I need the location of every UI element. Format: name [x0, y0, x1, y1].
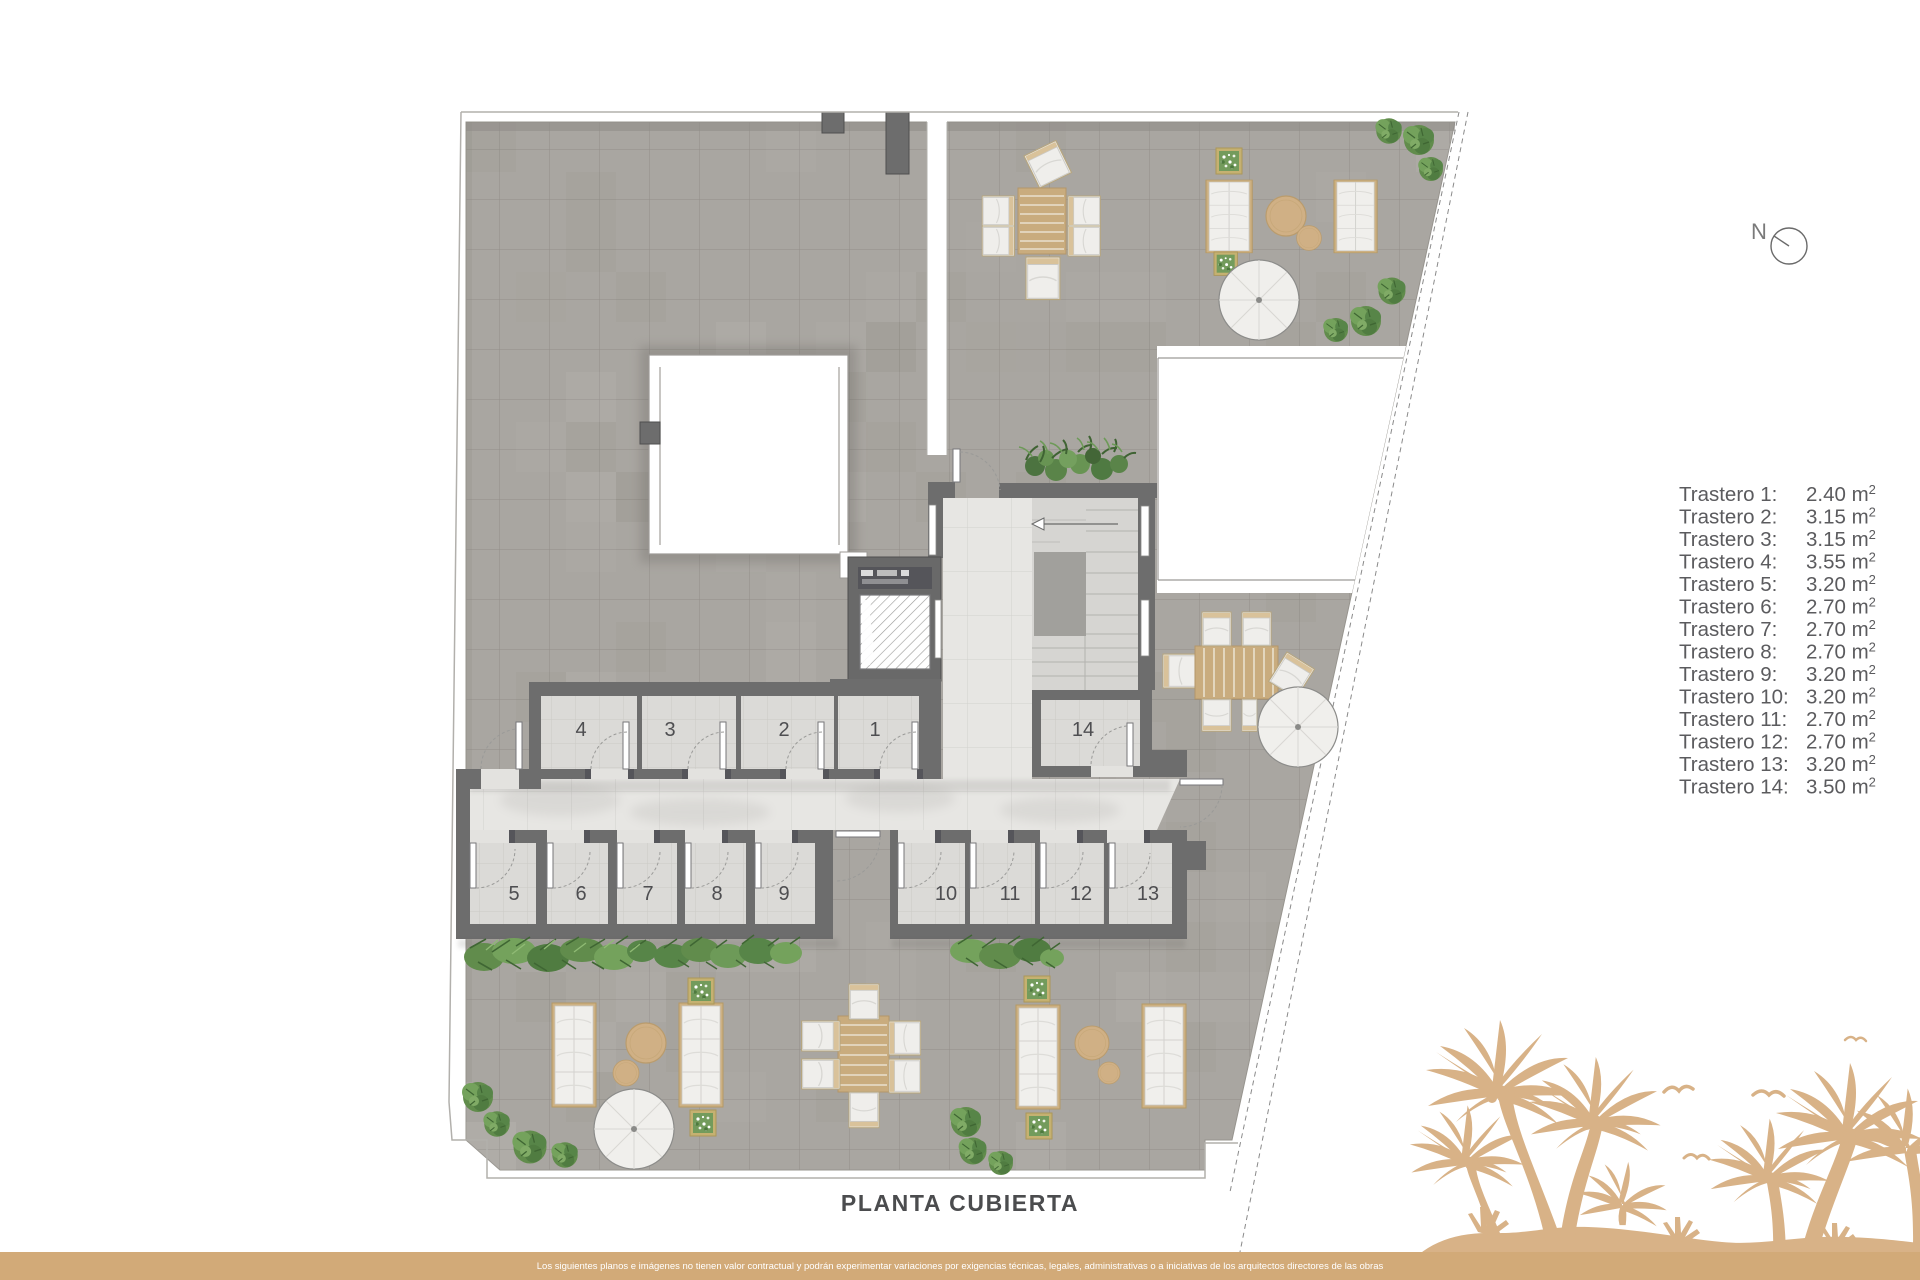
svg-text:Trastero 8:: Trastero 8: [1679, 641, 1777, 664]
svg-text:12: 12 [1070, 883, 1092, 905]
svg-text:Trastero 13:: Trastero 13: [1679, 753, 1789, 776]
svg-text:Trastero 3:: Trastero 3: [1679, 528, 1777, 551]
svg-text:14: 14 [1072, 719, 1094, 741]
svg-text:2.70 m2: 2.70 m2 [1806, 640, 1876, 664]
svg-text:2.70 m2: 2.70 m2 [1806, 707, 1876, 731]
svg-text:Trastero 2:: Trastero 2: [1679, 506, 1777, 529]
svg-text:Trastero 14:: Trastero 14: [1679, 776, 1789, 799]
svg-text:1: 1 [869, 719, 880, 741]
svg-text:Trastero 9:: Trastero 9: [1679, 663, 1777, 686]
svg-text:Trastero 6:: Trastero 6: [1679, 596, 1777, 619]
svg-text:Los siguientes planos e imágen: Los siguientes planos e imágenes no tien… [537, 1261, 1384, 1272]
svg-text:3.20 m2: 3.20 m2 [1806, 662, 1876, 686]
svg-text:Trastero 5:: Trastero 5: [1679, 573, 1777, 596]
svg-text:Trastero 7:: Trastero 7: [1679, 618, 1777, 641]
svg-text:13: 13 [1137, 883, 1159, 905]
svg-text:Trastero 4:: Trastero 4: [1679, 551, 1777, 574]
svg-text:3.20 m2: 3.20 m2 [1806, 752, 1876, 776]
svg-text:2.70 m2: 2.70 m2 [1806, 730, 1876, 754]
svg-text:3.15 m2: 3.15 m2 [1806, 505, 1876, 529]
svg-text:Trastero 1:: Trastero 1: [1679, 483, 1777, 506]
svg-text:10: 10 [935, 883, 957, 905]
svg-text:3.15 m2: 3.15 m2 [1806, 527, 1876, 551]
svg-text:11: 11 [1000, 883, 1021, 905]
svg-text:Trastero 10:: Trastero 10: [1679, 686, 1789, 709]
svg-text:Trastero 12:: Trastero 12: [1679, 731, 1789, 754]
svg-text:6: 6 [575, 883, 586, 905]
svg-text:7: 7 [642, 883, 653, 905]
svg-text:5: 5 [508, 883, 519, 905]
svg-text:2.70 m2: 2.70 m2 [1806, 617, 1876, 641]
svg-text:3.50 m2: 3.50 m2 [1806, 775, 1876, 799]
svg-text:8: 8 [711, 883, 722, 905]
svg-text:N: N [1751, 219, 1767, 244]
svg-text:PLANTA CUBIERTA: PLANTA CUBIERTA [841, 1190, 1079, 1216]
svg-text:Trastero 11:: Trastero 11: [1679, 708, 1787, 731]
svg-text:3.55 m2: 3.55 m2 [1806, 550, 1876, 574]
svg-text:2.40 m2: 2.40 m2 [1806, 482, 1876, 506]
svg-text:4: 4 [575, 719, 586, 741]
svg-text:3.20 m2: 3.20 m2 [1806, 685, 1876, 709]
svg-text:2.70 m2: 2.70 m2 [1806, 595, 1876, 619]
svg-text:9: 9 [778, 883, 789, 905]
svg-text:3: 3 [664, 719, 675, 741]
svg-text:3.20 m2: 3.20 m2 [1806, 572, 1876, 596]
svg-text:2: 2 [778, 719, 789, 741]
